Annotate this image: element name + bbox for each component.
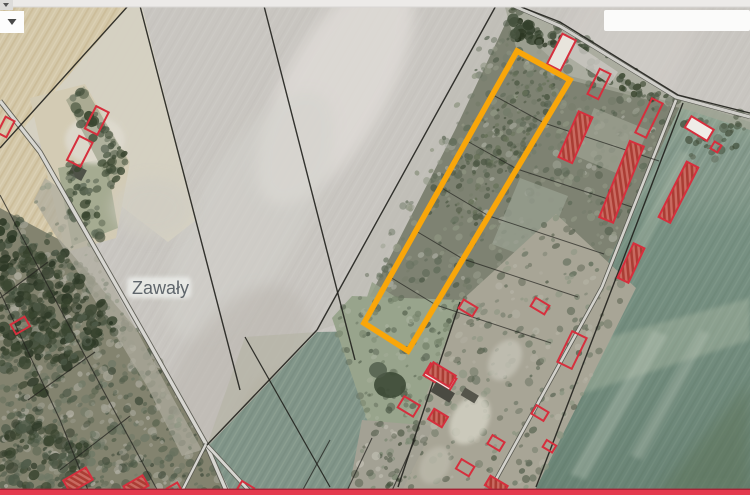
svg-text:Zawały: Zawały [132,278,189,298]
